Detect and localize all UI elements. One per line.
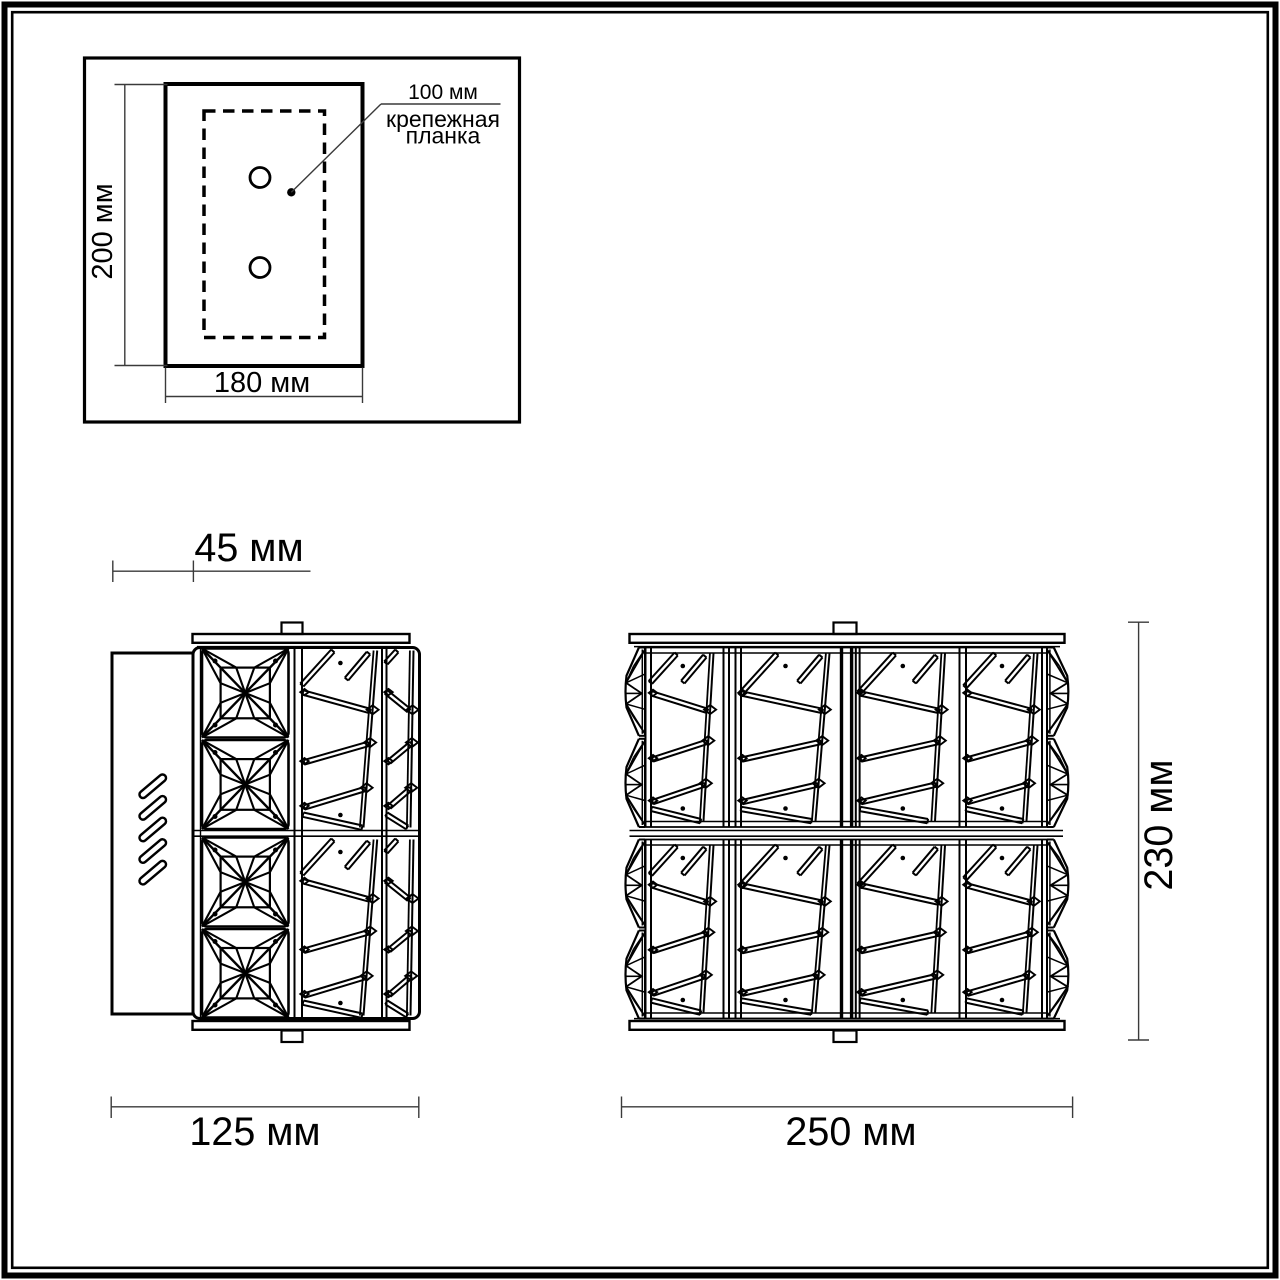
svg-text:планка: планка [406,123,481,149]
svg-text:200 мм: 200 мм [87,183,119,279]
svg-text:100 мм: 100 мм [408,81,478,104]
svg-text:250 мм: 250 мм [785,1110,916,1154]
svg-text:125 мм: 125 мм [189,1110,320,1154]
svg-text:45 мм: 45 мм [194,526,303,570]
svg-text:230 мм: 230 мм [1137,759,1181,890]
svg-text:180 мм: 180 мм [214,367,310,399]
